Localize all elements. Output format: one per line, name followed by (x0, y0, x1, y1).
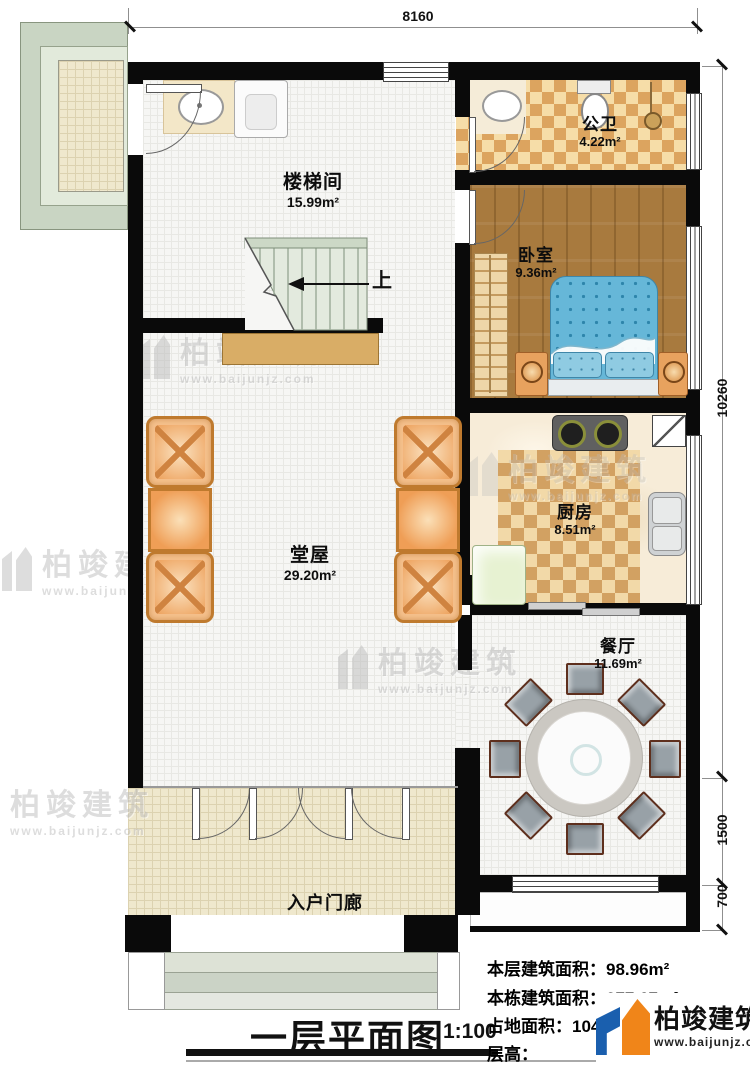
dining-area: 11.69m² (558, 657, 678, 672)
dining-window (512, 876, 659, 893)
watermark-url: www.baijunjz.com (180, 372, 324, 386)
dim-right-bottom-value: 700 (714, 874, 730, 918)
armchair (394, 416, 462, 488)
stat-floor-area-label: 本层建筑面积： (487, 960, 606, 979)
side-table (148, 488, 212, 552)
bedroom-label: 卧室 9.36m² (492, 246, 580, 280)
dining-label: 餐厅 11.69m² (558, 637, 678, 671)
bedroom-name: 卧室 (492, 246, 580, 266)
hall-area: 29.20m² (245, 567, 375, 583)
porch-label: 入户门廊 (250, 893, 400, 914)
nightstand-lamp (521, 361, 543, 383)
porch-step (163, 972, 439, 994)
porch-step (163, 952, 439, 974)
stair-up-label: 上 (372, 264, 392, 293)
porch-column-left (125, 915, 171, 952)
dim-ext (128, 8, 129, 34)
dining-chair (649, 740, 681, 778)
brand-url: www.baijunjz.com (654, 1035, 750, 1049)
rear-terrace (470, 892, 688, 930)
top-window (383, 62, 449, 82)
wall-bath-bed-divider (455, 170, 700, 185)
porch-door-leaf (402, 788, 410, 840)
dining-chair (566, 823, 604, 855)
dining-chair (489, 740, 521, 778)
porch-step-side (437, 952, 460, 1010)
bedroom-area: 9.36m² (492, 266, 580, 281)
hall-name: 堂屋 (245, 545, 375, 567)
stat-footprint-label: 占地面积： (487, 1017, 572, 1036)
brand-logo-icon-orange (622, 999, 650, 1055)
watermark-url: www.baijunjz.com (378, 682, 522, 696)
staircase (238, 230, 373, 336)
nightstand-lamp (663, 361, 685, 383)
floor-plan-canvas: 柏竣建筑 www.baijunjz.com 柏竣建筑 www.baijunjz.… (0, 0, 750, 1065)
kitchen-window (686, 435, 702, 605)
kitchen-sink-basin (652, 497, 682, 524)
wall-left-upper (128, 62, 143, 84)
shower-hose (650, 82, 652, 114)
porch-column-right (404, 915, 458, 952)
dim-top-value: 8160 (388, 8, 448, 24)
kitchen-label: 厨房 8.51m² (530, 503, 620, 537)
dim-right-mid-value: 1500 (714, 804, 730, 856)
brand-name: 柏竣建筑 (654, 999, 750, 1036)
wall-left (128, 155, 143, 788)
stat-storey-height: 层高： (487, 1040, 538, 1065)
armchair (394, 551, 462, 623)
watermark: 柏竣建筑 www.baijunjz.com (0, 780, 154, 838)
watermark: 柏竣建筑 www.baijunjz.com (338, 638, 522, 696)
stat-floor-area-value: 98.96m² (606, 960, 669, 979)
bathroom-name: 公卫 (545, 115, 655, 135)
bed-headboard (548, 379, 660, 396)
wall-hall-dining-upper (458, 615, 472, 670)
side-table (396, 488, 460, 552)
bathroom-window (686, 93, 702, 170)
armchair (146, 416, 214, 488)
wall-bed-kitchen-divider (455, 398, 700, 413)
bedroom-window (686, 226, 702, 390)
fridge (472, 545, 526, 605)
brand-building-icon (468, 452, 498, 496)
pillow (553, 352, 602, 378)
brand-logo: 柏竣建筑 www.baijunjz.com (596, 993, 750, 1063)
brand-building-icon (2, 547, 32, 591)
kitchen-name: 厨房 (530, 503, 620, 523)
wall-mid-1 (455, 62, 470, 117)
hall-label: 堂屋 29.20m² (245, 545, 375, 583)
watermark-url: www.baijunjz.com (10, 824, 154, 838)
kitchen-sliding-door (528, 602, 586, 610)
altar-platform (222, 333, 379, 365)
watermark-url: www.baijunjz.com (508, 489, 652, 503)
kitchen-area: 8.51m² (530, 523, 620, 538)
toilet-tank (577, 80, 611, 94)
washing-machine-drum (245, 94, 277, 130)
balcony-mat (58, 60, 124, 192)
porch-step-side (128, 952, 165, 1010)
dim-line-top (130, 27, 697, 28)
wardrobe-rail (489, 255, 491, 393)
stairwell-area: 15.99m² (248, 194, 378, 210)
brand-building-icon (140, 335, 170, 379)
dim-right-main-value: 10260 (714, 370, 730, 426)
title-underline-thick (186, 1049, 498, 1056)
kitchen-sliding-door (582, 608, 640, 616)
brand-logo-icon-blue (596, 1007, 620, 1055)
wall-terrace-bottom (470, 926, 700, 932)
stat-floor-area: 本层建筑面积：98.96m² (487, 955, 669, 980)
stove-burner (558, 420, 586, 448)
kitchen-sink-basin (652, 526, 682, 551)
bathroom-door-recess-floor (456, 117, 470, 172)
bathroom-area: 4.22m² (545, 135, 655, 150)
dim-line-right (722, 66, 723, 932)
stat-total-area-label: 本栋建筑面积： (487, 989, 606, 1008)
watermark-name: 柏竣建筑 (378, 638, 522, 682)
stove-burner (594, 420, 622, 448)
porch-name: 入户门廊 (250, 893, 400, 914)
bathroom-label: 公卫 4.22m² (545, 115, 655, 149)
brand-logo-icon (596, 997, 650, 1055)
kitchen-corner-window (652, 415, 686, 447)
watermark: 柏竣建筑 www.baijunjz.com (468, 445, 652, 503)
pillow (605, 352, 654, 378)
armchair (146, 551, 214, 623)
stat-footprint: 占地面积：104. (487, 1012, 605, 1037)
dining-name: 餐厅 (558, 637, 678, 657)
stairwell-label: 楼梯间 15.99m² (248, 172, 378, 210)
stat-storey-height-label: 层高： (487, 1045, 538, 1064)
dining-table-center (570, 744, 602, 776)
stairwell-name: 楼梯间 (248, 172, 378, 194)
brand-building-icon (338, 645, 368, 689)
watermark-name: 柏竣建筑 (508, 445, 652, 489)
